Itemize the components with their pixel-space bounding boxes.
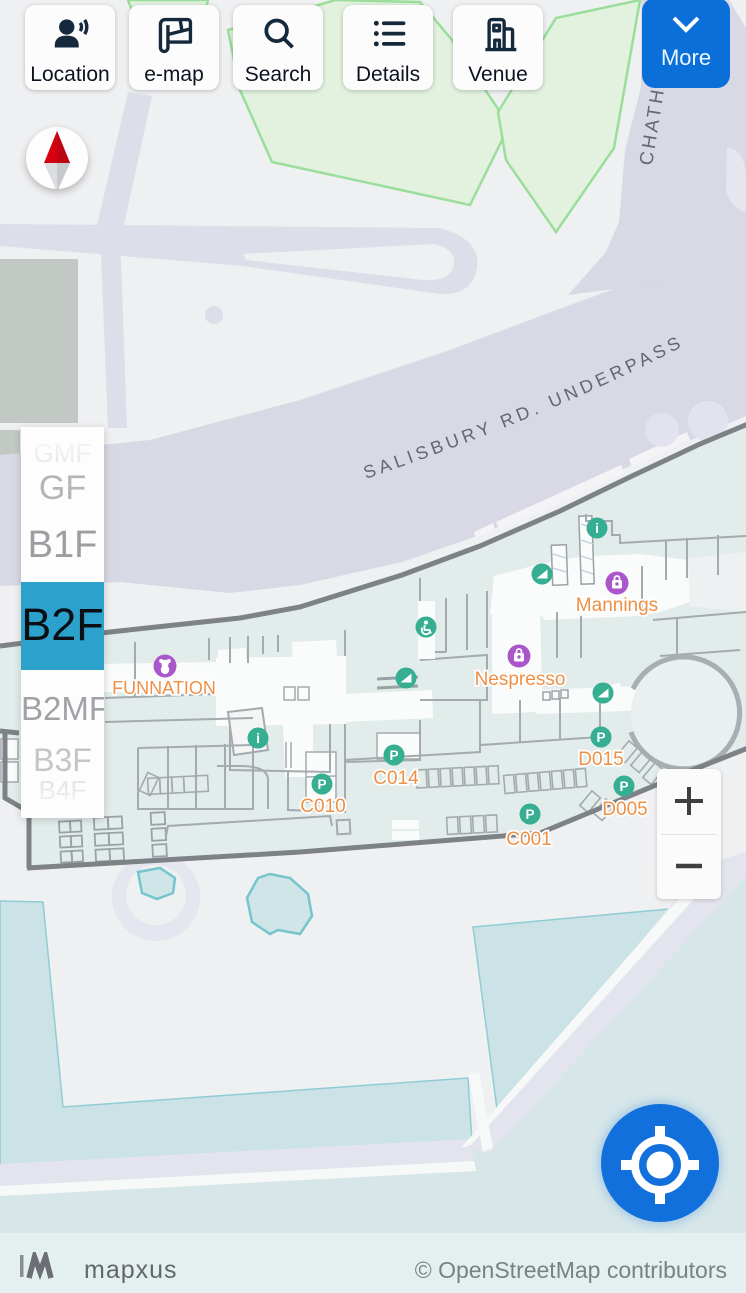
svg-text:P: P — [619, 779, 628, 794]
svg-text:P: P — [525, 807, 534, 822]
svg-text:P: P — [389, 748, 398, 763]
svg-text:P: P — [596, 730, 605, 745]
svg-text:C010: C010 — [300, 796, 345, 817]
svg-text:Mannings: Mannings — [576, 595, 658, 616]
svg-text:D015: D015 — [578, 749, 623, 770]
svg-text:i: i — [256, 730, 260, 746]
svg-text:P: P — [317, 777, 326, 792]
svg-text:D005: D005 — [602, 799, 647, 820]
svg-text:Nespresso: Nespresso — [475, 669, 566, 690]
svg-text:C014: C014 — [373, 768, 419, 789]
svg-text:i: i — [595, 520, 599, 536]
svg-text:C001: C001 — [506, 829, 551, 850]
svg-text:FUNNATION: FUNNATION — [112, 678, 216, 698]
